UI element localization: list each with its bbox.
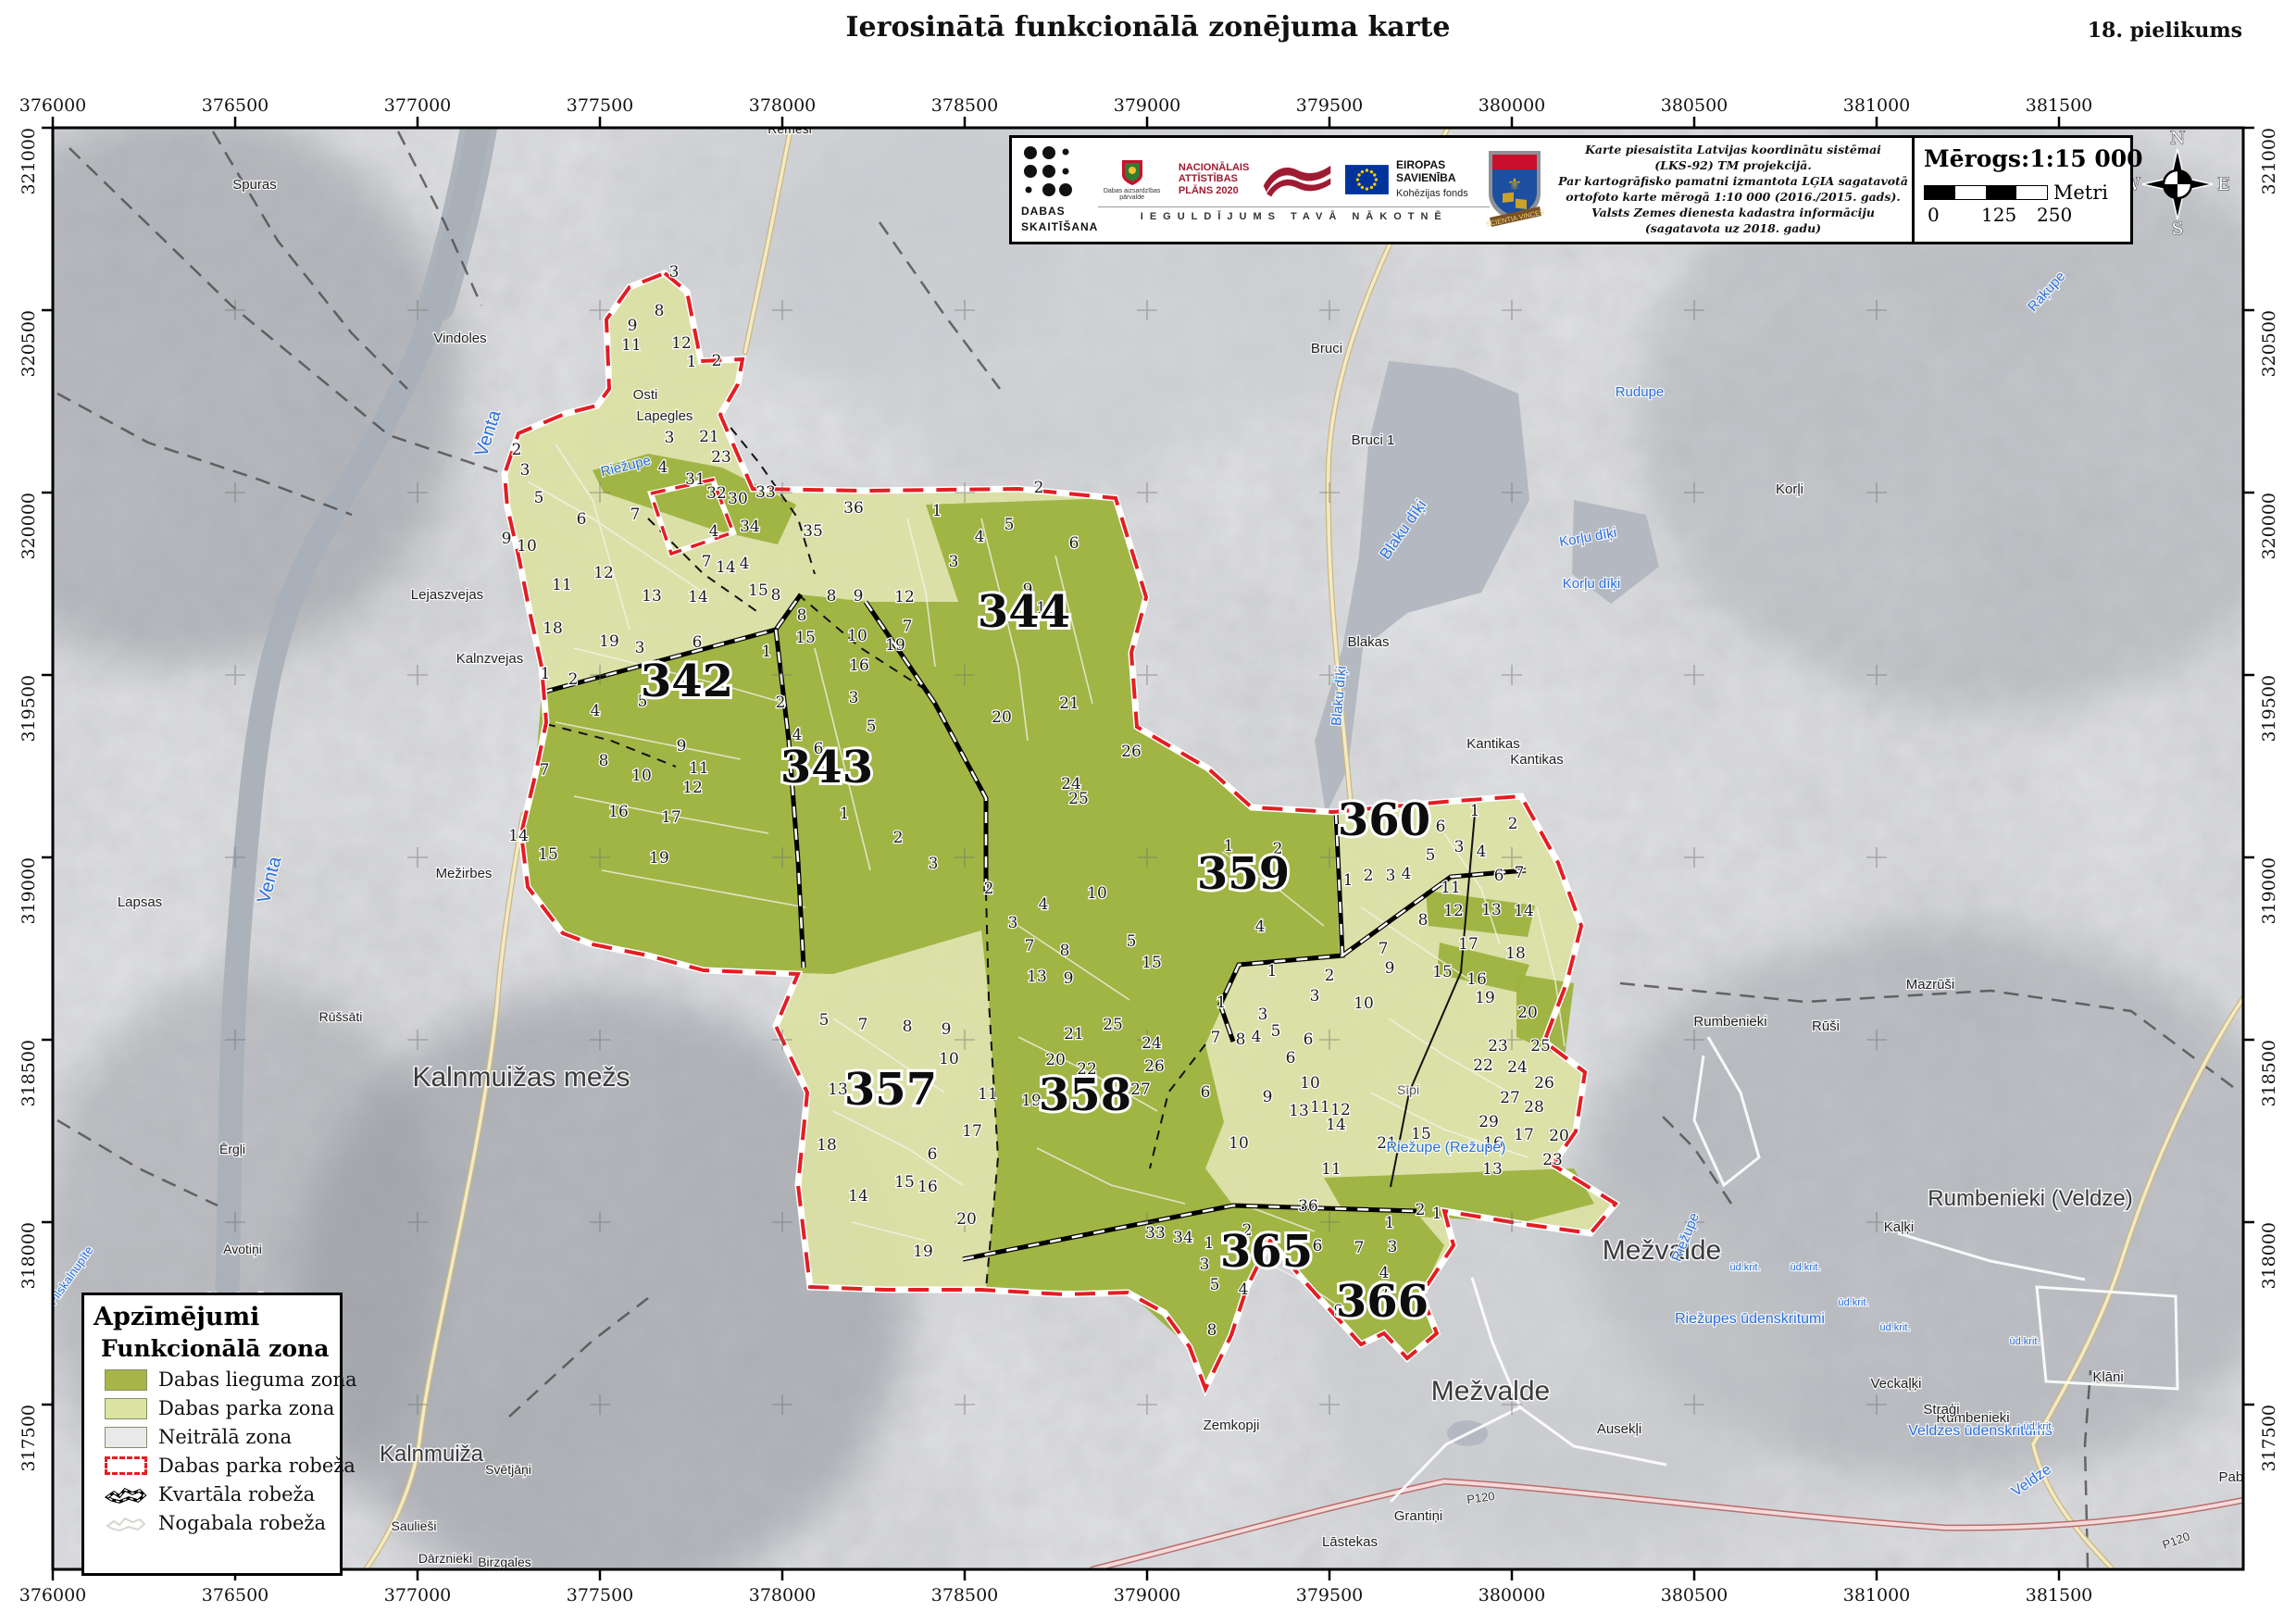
svg-text:5: 5 <box>1004 516 1015 534</box>
legend-item-label: Dabas lieguma zona <box>158 1368 356 1391</box>
svg-text:34: 34 <box>1173 1229 1193 1247</box>
svg-text:4: 4 <box>1477 843 1487 861</box>
svg-text:36: 36 <box>1298 1197 1318 1216</box>
svg-text:Avotiņi: Avotiņi <box>223 1242 262 1256</box>
svg-text:6: 6 <box>1304 1031 1314 1049</box>
svg-text:Mazrūši: Mazrūši <box>1906 977 1955 993</box>
legend-item-label: Dabas parka zona <box>158 1397 334 1419</box>
svg-text:29: 29 <box>1479 1113 1499 1131</box>
svg-text:ūd.krit.: ūd.krit. <box>1729 1262 1760 1273</box>
svg-text:24: 24 <box>1142 1034 1162 1053</box>
svg-text:17: 17 <box>1514 1126 1534 1144</box>
svg-text:3: 3 <box>669 263 680 281</box>
svg-text:17: 17 <box>661 808 681 827</box>
svg-text:Klāni: Klāni <box>2092 1369 2123 1385</box>
svg-text:320000: 320000 <box>19 493 39 560</box>
svg-text:Vindoles: Vindoles <box>433 331 486 346</box>
svg-text:4: 4 <box>658 458 668 477</box>
svg-text:7: 7 <box>702 553 712 571</box>
svg-text:26: 26 <box>1534 1074 1554 1093</box>
svg-text:9: 9 <box>854 587 864 606</box>
legend-item-3: Dabas parka robeža <box>105 1455 331 1477</box>
svg-text:16: 16 <box>608 803 629 821</box>
legend-item-0: Dabas lieguma zona <box>105 1368 331 1391</box>
legend-item-1: Dabas parka zona <box>105 1397 331 1419</box>
svg-text:9: 9 <box>502 530 512 548</box>
svg-text:7: 7 <box>540 761 550 780</box>
svg-text:317500: 317500 <box>2259 1405 2279 1472</box>
svg-text:6: 6 <box>1069 534 1079 553</box>
svg-text:318500: 318500 <box>2259 1040 2279 1107</box>
legend-kvartala-icon <box>105 1484 147 1505</box>
svg-text:2: 2 <box>512 441 522 459</box>
svg-text:Riežupe (Režupe): Riežupe (Režupe) <box>1387 1140 1506 1156</box>
svg-text:2: 2 <box>1325 967 1335 985</box>
svg-text:Kalnmuiža: Kalnmuiža <box>380 1442 484 1467</box>
svg-text:381000: 381000 <box>1843 1585 1911 1605</box>
svg-text:359: 359 <box>1197 848 1290 900</box>
svg-text:11: 11 <box>1310 1098 1330 1117</box>
svg-text:319000: 319000 <box>2259 857 2279 925</box>
svg-text:9: 9 <box>1263 1088 1273 1106</box>
svg-text:Rudupe: Rudupe <box>1616 384 1665 400</box>
svg-text:377500: 377500 <box>567 1585 634 1605</box>
svg-text:23: 23 <box>1488 1037 1508 1056</box>
svg-text:18: 18 <box>1505 944 1526 963</box>
svg-text:16: 16 <box>849 656 869 675</box>
svg-text:2: 2 <box>1416 1201 1426 1219</box>
svg-text:5: 5 <box>867 718 877 736</box>
svg-text:5: 5 <box>1127 932 1137 951</box>
svg-text:ūd.krit.: ūd.krit. <box>1838 1297 1868 1308</box>
svg-text:Kantikas: Kantikas <box>1466 736 1520 752</box>
svg-text:10: 10 <box>1087 884 1107 903</box>
svg-text:S: S <box>2171 219 2183 239</box>
svg-text:19: 19 <box>885 636 905 655</box>
svg-text:23: 23 <box>1542 1151 1563 1169</box>
svg-text:18: 18 <box>543 619 563 638</box>
svg-text:10: 10 <box>847 627 867 645</box>
svg-text:12: 12 <box>1443 902 1464 920</box>
svg-text:1: 1 <box>840 805 850 823</box>
svg-text:8: 8 <box>1236 1031 1246 1049</box>
svg-text:1: 1 <box>1217 993 1227 1012</box>
svg-text:Kalnmuižas mežs: Kalnmuižas mežs <box>412 1062 630 1093</box>
info-panel: DABAS SKAITĪŠANA Dabas aizsardzības pārv… <box>1009 135 2133 244</box>
svg-text:2: 2 <box>1034 479 1044 497</box>
svg-text:380500: 380500 <box>1661 95 1728 116</box>
svg-text:19: 19 <box>913 1243 933 1261</box>
svg-text:344: 344 <box>978 586 1070 638</box>
svg-text:14: 14 <box>1326 1116 1346 1134</box>
svg-text:ūd.krit.: ūd.krit. <box>1879 1322 1910 1333</box>
svg-text:321000: 321000 <box>2259 128 2279 195</box>
svg-text:7: 7 <box>1025 937 1035 956</box>
svg-text:6: 6 <box>1201 1083 1211 1102</box>
legend-subtitle: Funkcionālā zona <box>101 1335 331 1362</box>
svg-text:⚜: ⚜ <box>1507 175 1522 194</box>
svg-text:2: 2 <box>1508 815 1518 833</box>
svg-text:Sīpi: Sīpi <box>1397 1082 1419 1097</box>
svg-text:15: 15 <box>894 1173 915 1192</box>
svg-text:13: 13 <box>642 587 662 606</box>
svg-text:14: 14 <box>716 558 736 577</box>
svg-text:8: 8 <box>1207 1321 1217 1340</box>
svg-text:Saulieši: Saulieši <box>391 1518 436 1533</box>
dap-arms-icon <box>1120 158 1144 186</box>
legend-item-label: Dabas parka robeža <box>158 1455 356 1477</box>
svg-text:14: 14 <box>688 588 708 606</box>
svg-text:376000: 376000 <box>19 1585 87 1605</box>
svg-text:4: 4 <box>1252 1028 1262 1046</box>
svg-text:4: 4 <box>1239 1280 1249 1299</box>
svg-text:4: 4 <box>1039 895 1049 914</box>
svg-text:Kantikas: Kantikas <box>1510 752 1564 768</box>
svg-text:10: 10 <box>517 537 537 556</box>
svg-text:1: 1 <box>1267 962 1278 981</box>
legend-item-4: Kvartāla robeža <box>105 1483 331 1505</box>
svg-text:20: 20 <box>1045 1051 1066 1069</box>
svg-text:3: 3 <box>949 553 959 571</box>
svg-text:35: 35 <box>803 522 823 541</box>
svg-text:12: 12 <box>894 588 915 606</box>
svg-text:379000: 379000 <box>1114 1585 1181 1605</box>
svg-text:25: 25 <box>1530 1037 1551 1056</box>
legend-swatch <box>105 1427 147 1448</box>
svg-text:13: 13 <box>1027 968 1047 986</box>
svg-text:Lāstekas: Lāstekas <box>1322 1534 1378 1550</box>
svg-text:Kalnzvejas: Kalnzvejas <box>456 651 524 667</box>
svg-text:366: 366 <box>1336 1276 1429 1328</box>
svg-text:21: 21 <box>699 428 719 446</box>
svg-text:22: 22 <box>1473 1056 1493 1075</box>
svg-text:3: 3 <box>520 461 530 480</box>
scale-bar: Metri <box>1924 181 2108 204</box>
svg-text:365: 365 <box>1220 1226 1313 1278</box>
svg-text:8: 8 <box>1060 942 1070 960</box>
svg-text:7: 7 <box>858 1016 868 1034</box>
svg-text:Pabē: Pabē <box>2218 1469 2251 1485</box>
svg-text:378500: 378500 <box>931 95 999 116</box>
svg-text:2: 2 <box>893 829 904 847</box>
svg-text:379500: 379500 <box>1296 1585 1364 1605</box>
svg-text:3: 3 <box>1454 838 1465 856</box>
svg-text:318500: 318500 <box>19 1040 39 1107</box>
svg-text:N: N <box>2170 128 2186 148</box>
svg-text:6: 6 <box>1313 1237 1323 1255</box>
svg-text:18: 18 <box>817 1136 837 1155</box>
svg-text:9: 9 <box>677 737 687 756</box>
svg-text:33: 33 <box>1145 1224 1166 1243</box>
svg-text:10: 10 <box>1354 994 1374 1013</box>
svg-text:Ērgļi: Ērgļi <box>219 1142 245 1156</box>
svg-text:Grantiņi: Grantiņi <box>1394 1508 1443 1524</box>
svg-text:1: 1 <box>1432 1205 1442 1223</box>
svg-text:2: 2 <box>568 670 579 689</box>
svg-text:380500: 380500 <box>1661 1585 1728 1605</box>
svg-text:4: 4 <box>740 555 750 573</box>
svg-text:7: 7 <box>903 618 913 636</box>
svg-text:30: 30 <box>728 490 748 508</box>
svg-text:377500: 377500 <box>567 95 634 116</box>
svg-text:3: 3 <box>665 429 675 447</box>
svg-text:8: 8 <box>599 752 609 770</box>
svg-text:321000: 321000 <box>19 128 39 195</box>
dabas-skaitisana-logo: DABAS SKAITĪŠANA <box>1021 145 1098 233</box>
svg-text:376500: 376500 <box>202 1585 269 1605</box>
svg-text:10: 10 <box>631 767 652 785</box>
svg-text:20: 20 <box>956 1210 977 1229</box>
svg-text:Mežirbes: Mežirbes <box>436 866 493 881</box>
svg-text:25: 25 <box>1068 790 1089 808</box>
legend-box: Apzīmējumi Funkcionālā zona Dabas liegum… <box>81 1293 343 1576</box>
svg-text:3: 3 <box>929 855 939 873</box>
svg-text:E: E <box>2217 174 2230 194</box>
svg-text:8: 8 <box>1418 911 1429 930</box>
svg-text:7: 7 <box>1379 940 1389 958</box>
svg-text:Spuras: Spuras <box>232 177 277 193</box>
svg-text:3: 3 <box>1386 867 1396 885</box>
legend-swatch <box>105 1398 147 1419</box>
svg-text:25: 25 <box>1103 1016 1123 1034</box>
legend-red-dash-icon <box>105 1456 147 1475</box>
svg-text:10: 10 <box>1300 1074 1320 1093</box>
svg-text:14: 14 <box>1514 902 1534 920</box>
svg-text:19: 19 <box>649 849 669 868</box>
svg-text:7: 7 <box>1515 864 1525 882</box>
svg-text:11: 11 <box>1321 1160 1341 1179</box>
svg-text:19: 19 <box>1475 989 1495 1007</box>
svg-text:Rūšsāti: Rūšsāti <box>319 1009 363 1024</box>
scale-title: Mērogs:1:15 000 <box>1924 145 2108 172</box>
svg-text:17: 17 <box>1458 935 1479 954</box>
svg-text:11: 11 <box>552 576 572 594</box>
legend-nogabala-icon <box>105 1513 147 1534</box>
map-credits: Karte piesaistīta Latvijas koordinātu si… <box>1554 138 1912 242</box>
svg-text:9: 9 <box>1385 959 1395 978</box>
svg-text:15: 15 <box>1142 954 1162 972</box>
legend-item-label: Nogabala robeža <box>158 1512 326 1534</box>
svg-text:Rūši: Rūši <box>1812 1018 1840 1034</box>
dots-logo-icon <box>1021 145 1080 197</box>
svg-text:3: 3 <box>849 689 859 707</box>
svg-text:17: 17 <box>962 1122 982 1141</box>
svg-text:1: 1 <box>687 353 697 371</box>
svg-text:Bruci: Bruci <box>1311 341 1342 356</box>
svg-text:376500: 376500 <box>202 95 269 116</box>
svg-text:318000: 318000 <box>2259 1222 2279 1290</box>
svg-text:Zemkopji: Zemkopji <box>1204 1418 1260 1433</box>
svg-text:16: 16 <box>917 1178 938 1196</box>
svg-text:378000: 378000 <box>749 1585 817 1605</box>
svg-text:Rumbenieki (Veldze): Rumbenieki (Veldze) <box>1928 1186 2132 1211</box>
svg-text:5: 5 <box>819 1011 830 1030</box>
svg-text:Bruci 1: Bruci 1 <box>1352 432 1395 448</box>
svg-text:7: 7 <box>1354 1239 1365 1257</box>
svg-text:15: 15 <box>538 845 558 864</box>
svg-text:4: 4 <box>975 528 985 546</box>
scale-unit: Metri <box>2053 181 2108 204</box>
legend-item-label: Neitrālā zona <box>158 1426 292 1448</box>
svg-text:3: 3 <box>1388 1238 1398 1256</box>
svg-text:380000: 380000 <box>1479 95 1546 116</box>
svg-text:4: 4 <box>1402 865 1412 883</box>
svg-text:4: 4 <box>1255 918 1266 936</box>
eu-flag-icon <box>1345 162 1389 197</box>
page-title: Ierosinātā funkcionālā zonējuma karte <box>0 11 2296 44</box>
svg-text:6: 6 <box>1286 1049 1296 1068</box>
svg-text:378500: 378500 <box>931 1585 999 1605</box>
svg-text:8: 8 <box>655 302 665 320</box>
nap-logo: NACIONĀLAIS ATTĪSTĪBAS PLĀNS 2020 <box>1179 162 1249 197</box>
svg-text:3: 3 <box>1200 1255 1210 1274</box>
svg-text:10: 10 <box>1229 1134 1249 1153</box>
svg-text:Riežupes ūdenskritumi: Riežupes ūdenskritumi <box>1675 1311 1825 1327</box>
svg-text:4: 4 <box>591 702 601 720</box>
svg-text:11: 11 <box>1441 879 1461 897</box>
svg-text:Veckaļķi: Veckaļķi <box>1870 1376 1921 1392</box>
svg-text:12: 12 <box>682 779 703 797</box>
svg-text:Dārznieki: Dārznieki <box>418 1551 472 1566</box>
svg-text:320000: 320000 <box>2259 493 2279 560</box>
svg-text:24: 24 <box>1507 1058 1528 1077</box>
svg-text:2: 2 <box>776 693 786 712</box>
svg-text:320500: 320500 <box>19 310 39 378</box>
svg-text:3: 3 <box>1310 987 1320 1006</box>
svg-text:15: 15 <box>748 581 768 600</box>
svg-text:36: 36 <box>843 499 864 518</box>
svg-text:27: 27 <box>1500 1089 1520 1107</box>
svg-text:8: 8 <box>827 587 837 606</box>
svg-text:6: 6 <box>693 633 703 652</box>
slogan: IEGULDĪJUMS TAVĀ NĀKOTNĒ <box>1098 206 1490 222</box>
svg-text:15: 15 <box>795 629 816 647</box>
svg-text:319000: 319000 <box>19 857 39 925</box>
svg-text:5: 5 <box>1426 846 1436 865</box>
university-shield-icon: ⚜ SCIENTIA VINCES <box>1484 147 1545 232</box>
svg-text:11: 11 <box>978 1085 998 1104</box>
svg-text:16: 16 <box>1466 970 1487 989</box>
svg-text:Osti: Osti <box>633 387 658 403</box>
svg-text:Ausekļi: Ausekļi <box>1597 1421 1641 1437</box>
svg-text:6: 6 <box>577 510 587 529</box>
svg-text:380000: 380000 <box>1479 1585 1546 1605</box>
svg-text:13: 13 <box>1481 901 1502 919</box>
svg-text:1: 1 <box>1204 1234 1215 1253</box>
svg-text:13: 13 <box>1482 1160 1503 1179</box>
svg-text:3: 3 <box>635 639 645 657</box>
svg-text:Mežvalde: Mežvalde <box>1431 1376 1550 1406</box>
svg-text:1: 1 <box>932 502 942 520</box>
scale-box: Mērogs:1:15 000 Metri 0 125 250 <box>1912 138 2117 242</box>
svg-text:8: 8 <box>771 586 781 605</box>
svg-text:381000: 381000 <box>1843 95 1911 116</box>
svg-text:357: 357 <box>844 1064 937 1116</box>
svg-text:318000: 318000 <box>19 1222 39 1290</box>
svg-text:Svētjāņi: Svētjāņi <box>485 1462 531 1477</box>
svg-text:Lapegles: Lapegles <box>637 408 693 424</box>
svg-text:4: 4 <box>709 522 719 541</box>
svg-text:1: 1 <box>1385 1214 1395 1232</box>
svg-text:20: 20 <box>1517 1004 1538 1022</box>
svg-text:320500: 320500 <box>2259 310 2279 378</box>
svg-text:379500: 379500 <box>1296 95 1364 116</box>
map-sheet: Ierosinātā funkcionālā zonējuma karte 18… <box>0 0 2296 1624</box>
svg-text:Blakas: Blakas <box>1347 634 1389 650</box>
svg-text:14: 14 <box>848 1187 868 1206</box>
svg-text:ūd.krit.: ūd.krit. <box>1790 1262 1820 1273</box>
svg-text:3: 3 <box>1008 914 1018 932</box>
legend-item-label: Kvartāla robeža <box>158 1483 315 1505</box>
svg-text:381500: 381500 <box>2026 95 2093 116</box>
svg-text:14: 14 <box>508 827 529 845</box>
svg-text:378000: 378000 <box>749 95 817 116</box>
svg-text:19: 19 <box>599 632 619 651</box>
dap-logo: Dabas aizsardzības pārvalde <box>1098 158 1166 201</box>
svg-text:32: 32 <box>706 484 727 503</box>
svg-text:20: 20 <box>1549 1127 1569 1145</box>
svg-text:376000: 376000 <box>19 95 87 116</box>
svg-text:1: 1 <box>762 643 772 661</box>
svg-text:8: 8 <box>797 606 807 625</box>
svg-text:2: 2 <box>984 880 994 898</box>
svg-text:317500: 317500 <box>19 1405 39 1472</box>
svg-text:21: 21 <box>1059 694 1079 713</box>
svg-text:5: 5 <box>1210 1276 1220 1294</box>
svg-text:15: 15 <box>1432 963 1453 981</box>
svg-text:33: 33 <box>755 483 776 502</box>
svg-text:Mežvalde: Mežvalde <box>1603 1235 1721 1266</box>
svg-text:377000: 377000 <box>384 95 452 116</box>
latvia-ribbon-icon <box>1262 159 1332 200</box>
svg-text:377000: 377000 <box>384 1585 452 1605</box>
svg-text:28: 28 <box>1524 1098 1544 1117</box>
svg-text:1: 1 <box>1470 802 1480 820</box>
legend-swatch <box>105 1369 147 1391</box>
legend-item-5: Nogabala robeža <box>105 1512 331 1534</box>
svg-text:358: 358 <box>1039 1069 1131 1121</box>
svg-text:6: 6 <box>1436 818 1446 836</box>
svg-text:381500: 381500 <box>2026 1585 2093 1605</box>
svg-text:1: 1 <box>1343 871 1354 890</box>
svg-text:Rumbenieki: Rumbenieki <box>1693 1014 1766 1030</box>
svg-text:6: 6 <box>928 1145 938 1164</box>
svg-text:3: 3 <box>1258 1006 1268 1024</box>
svg-text:5: 5 <box>1271 1022 1281 1041</box>
legend-item-2: Neitrālā zona <box>105 1426 331 1448</box>
logos-block: DABAS SKAITĪŠANA Dabas aizsardzības pārv… <box>1012 138 1475 242</box>
svg-text:13: 13 <box>1289 1102 1309 1120</box>
svg-text:26: 26 <box>1144 1057 1165 1076</box>
svg-text:9: 9 <box>1064 969 1074 988</box>
svg-text:7: 7 <box>630 506 641 524</box>
svg-text:ūd.krit.: ūd.krit. <box>2023 1421 2053 1432</box>
svg-text:2: 2 <box>712 352 722 370</box>
svg-text:26: 26 <box>1121 743 1142 761</box>
svg-text:11: 11 <box>621 336 642 355</box>
svg-text:9: 9 <box>942 1020 952 1039</box>
svg-text:Lapsas: Lapsas <box>118 894 162 910</box>
svg-text:ūd.krit.: ūd.krit. <box>2009 1336 2040 1347</box>
svg-text:Lejaszvejas: Lejaszvejas <box>411 587 483 603</box>
svg-text:Kaļķi: Kaļķi <box>1884 1219 1915 1235</box>
svg-text:Birzgales: Birzgales <box>478 1555 531 1569</box>
svg-text:9: 9 <box>628 317 638 335</box>
svg-text:Korļi: Korļi <box>1776 481 1803 497</box>
svg-text:34: 34 <box>740 518 760 536</box>
svg-text:8: 8 <box>903 1018 913 1036</box>
svg-text:343: 343 <box>780 742 873 793</box>
